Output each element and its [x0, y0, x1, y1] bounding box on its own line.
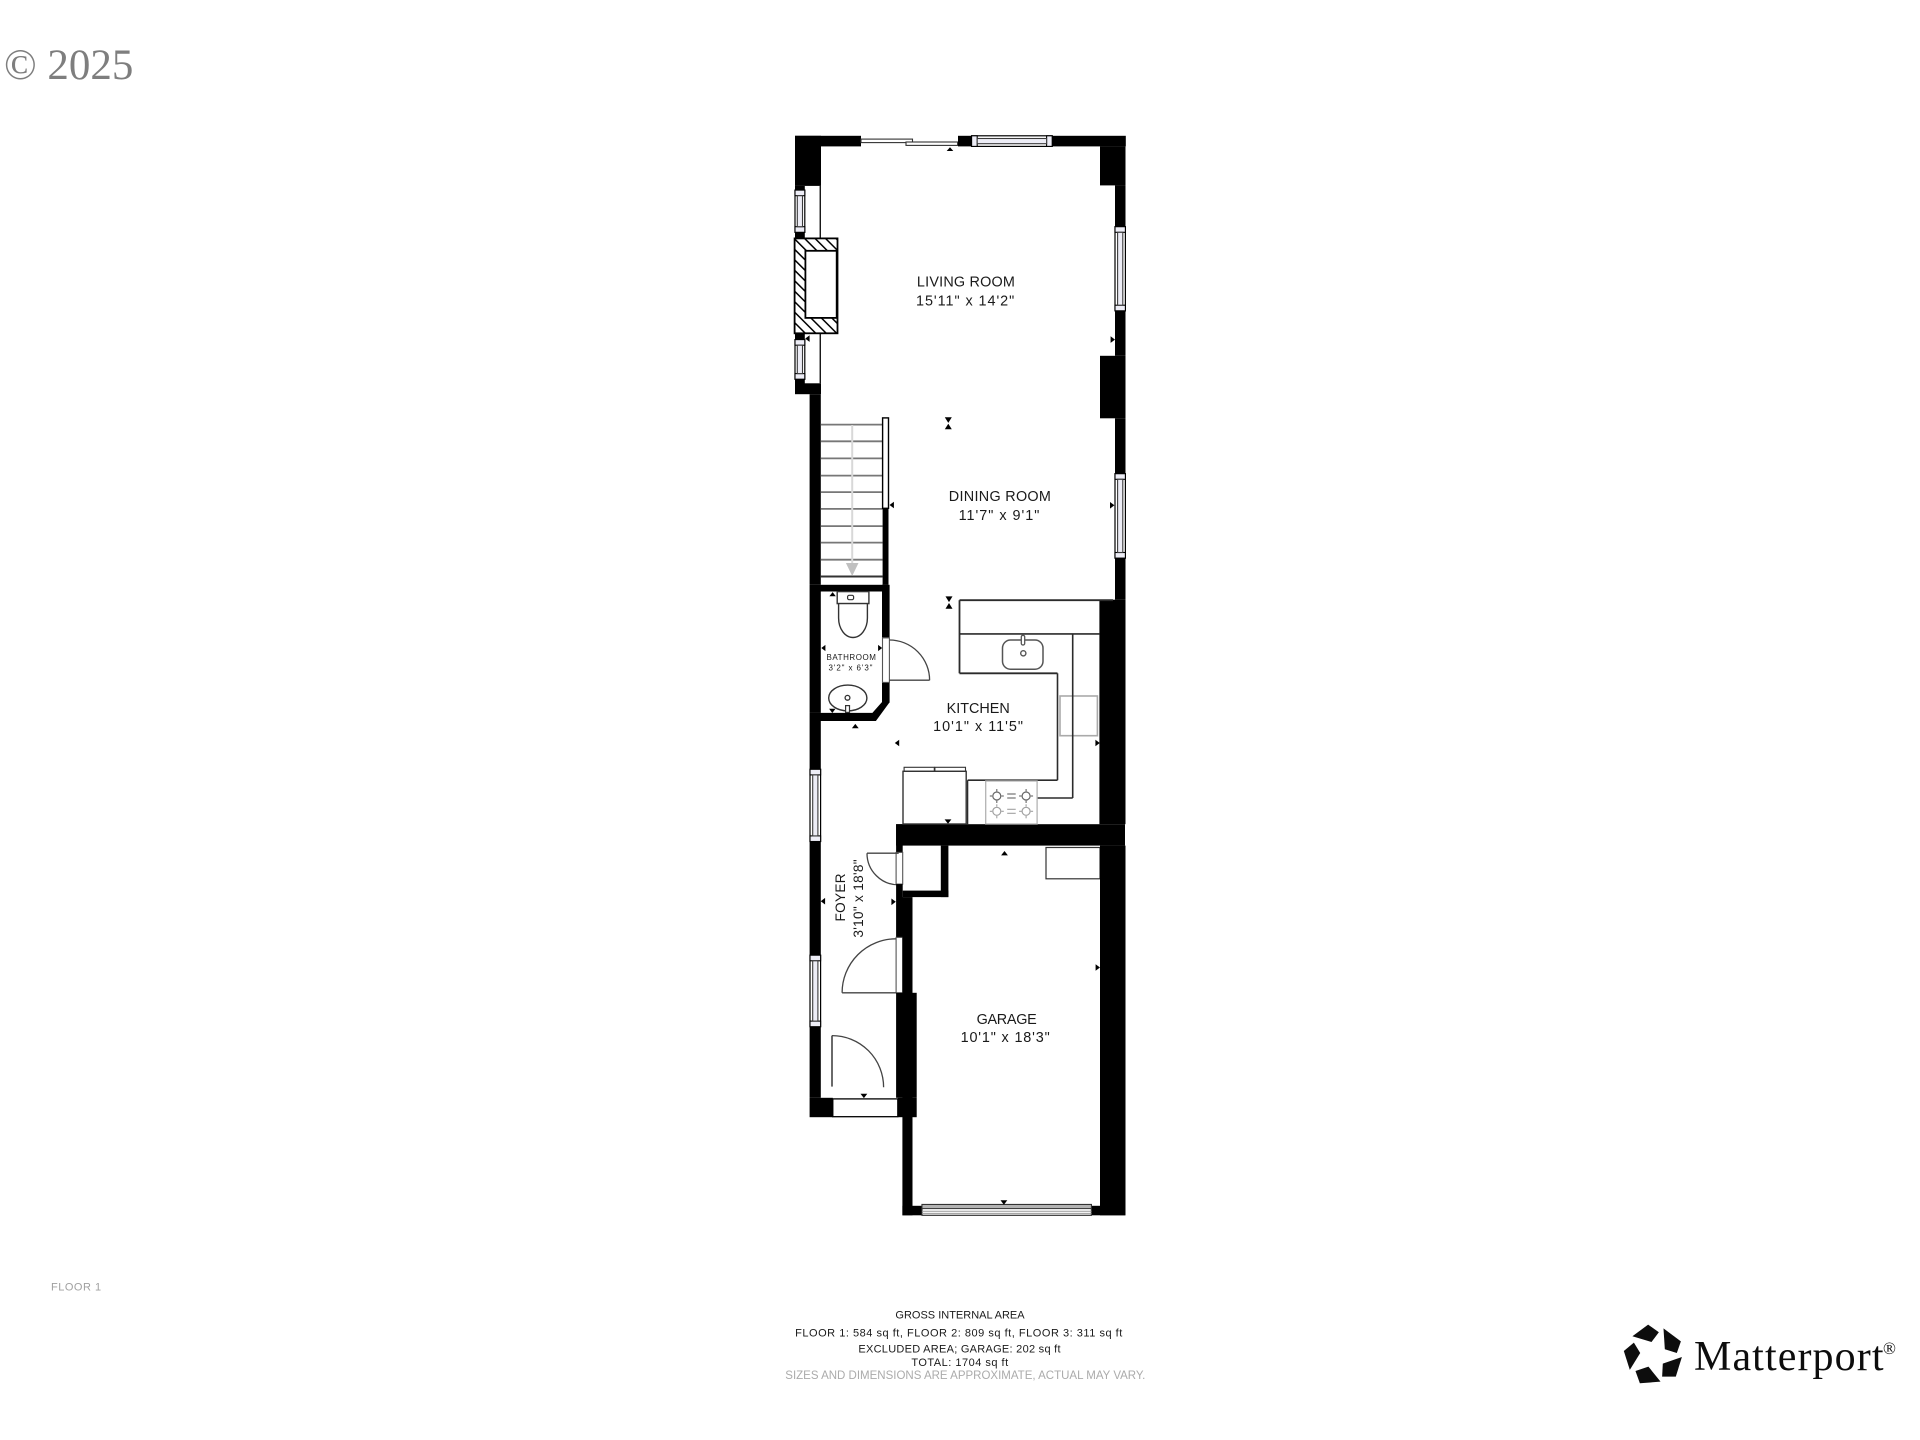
svg-text:GARAGE: GARAGE — [977, 1012, 1037, 1028]
svg-text:Matterport: Matterport — [1694, 1334, 1885, 1380]
svg-text:15'11" x 14'2": 15'11" x 14'2" — [916, 294, 1015, 310]
svg-text:3'10" x 18'8": 3'10" x 18'8" — [851, 859, 866, 937]
svg-text:FLOOR 1: 584 sq ft, FLOOR 2: 8: FLOOR 1: 584 sq ft, FLOOR 2: 809 sq ft, … — [795, 1328, 1123, 1340]
svg-text:KITCHEN: KITCHEN — [947, 701, 1010, 717]
svg-text:TOTAL: 1704 sq ft: TOTAL: 1704 sq ft — [911, 1357, 1008, 1369]
svg-text:10'1" x 18'3": 10'1" x 18'3" — [961, 1030, 1051, 1046]
svg-text:© 2025: © 2025 — [4, 42, 133, 89]
svg-text:FLOOR 1: FLOOR 1 — [51, 1281, 102, 1293]
svg-text:EXCLUDED AREA; GARAGE: 202 sq: EXCLUDED AREA; GARAGE: 202 sq ft — [858, 1344, 1060, 1356]
svg-text:11'7" x 9'1": 11'7" x 9'1" — [959, 508, 1041, 524]
svg-text:BATHROOM: BATHROOM — [826, 653, 876, 662]
svg-text:SIZES AND DIMENSIONS ARE APPRO: SIZES AND DIMENSIONS ARE APPROXIMATE, AC… — [785, 1370, 1145, 1382]
svg-text:DINING ROOM: DINING ROOM — [949, 489, 1051, 505]
svg-text:LIVING ROOM: LIVING ROOM — [917, 275, 1015, 291]
svg-text:FOYER: FOYER — [833, 873, 848, 921]
svg-text:3'2" x 6'3": 3'2" x 6'3" — [829, 664, 874, 673]
svg-text:GROSS INTERNAL AREA: GROSS INTERNAL AREA — [895, 1310, 1025, 1322]
svg-text:10'1" x 11'5": 10'1" x 11'5" — [933, 719, 1024, 735]
svg-text:®: ® — [1883, 1339, 1896, 1358]
